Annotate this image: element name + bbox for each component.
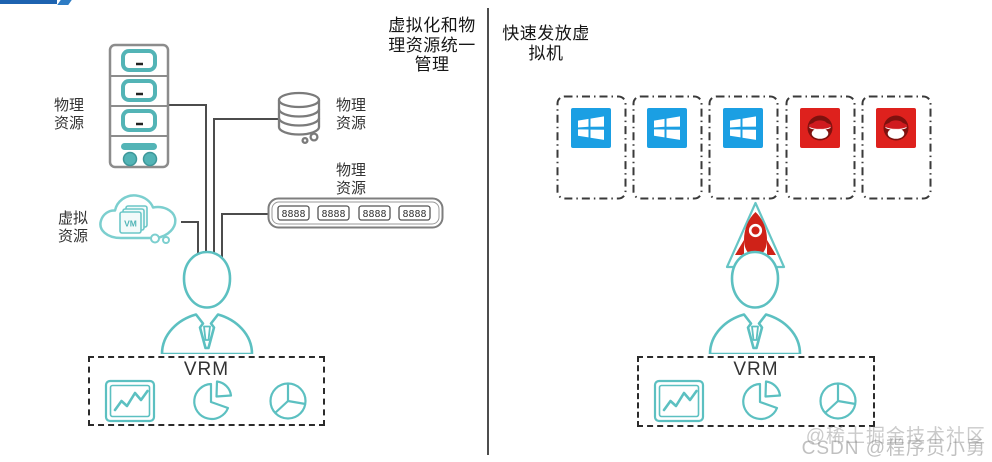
segmented-pie-chart-icon	[267, 380, 309, 422]
vrm-icons-left	[90, 378, 323, 424]
cloud-vm-text: VM	[124, 219, 137, 229]
vm-box-windows-2	[632, 95, 703, 200]
vm-box-redhat-1	[785, 95, 856, 200]
vm-box-windows-3	[708, 95, 779, 200]
virtual-resource-cloud-icon: VM	[93, 189, 189, 249]
admin-person-icon-right	[708, 250, 802, 354]
server-rack-icon	[108, 43, 170, 169]
network-switch-icon: 8888 8888 8888 8888	[267, 197, 444, 229]
switch-port-digits: 8888	[402, 209, 426, 220]
pie-chart-icon	[739, 379, 783, 423]
redhat-logo-icon	[800, 108, 840, 148]
vm-box-redhat-2	[861, 95, 932, 200]
storage-database-icon	[276, 91, 322, 145]
right-panel-title: 快速发放虚拟机	[496, 24, 596, 63]
windows-logo-icon	[571, 108, 611, 148]
physical-resource-label-switch: 物理资源	[334, 162, 368, 198]
windows-logo-icon	[723, 108, 763, 148]
vm-box-windows-1	[556, 95, 627, 200]
pie-chart-icon	[190, 379, 234, 423]
switch-port-digits: 8888	[321, 209, 345, 220]
redhat-logo-icon	[876, 108, 916, 148]
vrm-box-right: VRM	[637, 356, 875, 427]
segmented-pie-chart-icon	[817, 380, 859, 422]
line-chart-icon	[653, 379, 705, 423]
physical-resource-label-server: 物理资源	[52, 97, 86, 133]
panel-divider	[487, 8, 489, 455]
vrm-icons-right	[639, 378, 873, 424]
watermark-csdn: CSDN @程序员小勇	[802, 433, 986, 460]
vrm-box-left: VRM	[88, 356, 325, 426]
diagram-canvas: 虚拟化和物理资源统一管理 物理资源	[0, 0, 992, 462]
windows-logo-icon	[647, 108, 687, 148]
switch-port-digits: 8888	[281, 209, 305, 220]
virtual-resource-label: 虚拟资源	[56, 210, 90, 246]
physical-resource-label-storage: 物理资源	[334, 97, 368, 133]
line-chart-icon	[104, 379, 156, 423]
admin-person-icon-left	[160, 250, 254, 354]
switch-port-digits: 8888	[362, 209, 386, 220]
